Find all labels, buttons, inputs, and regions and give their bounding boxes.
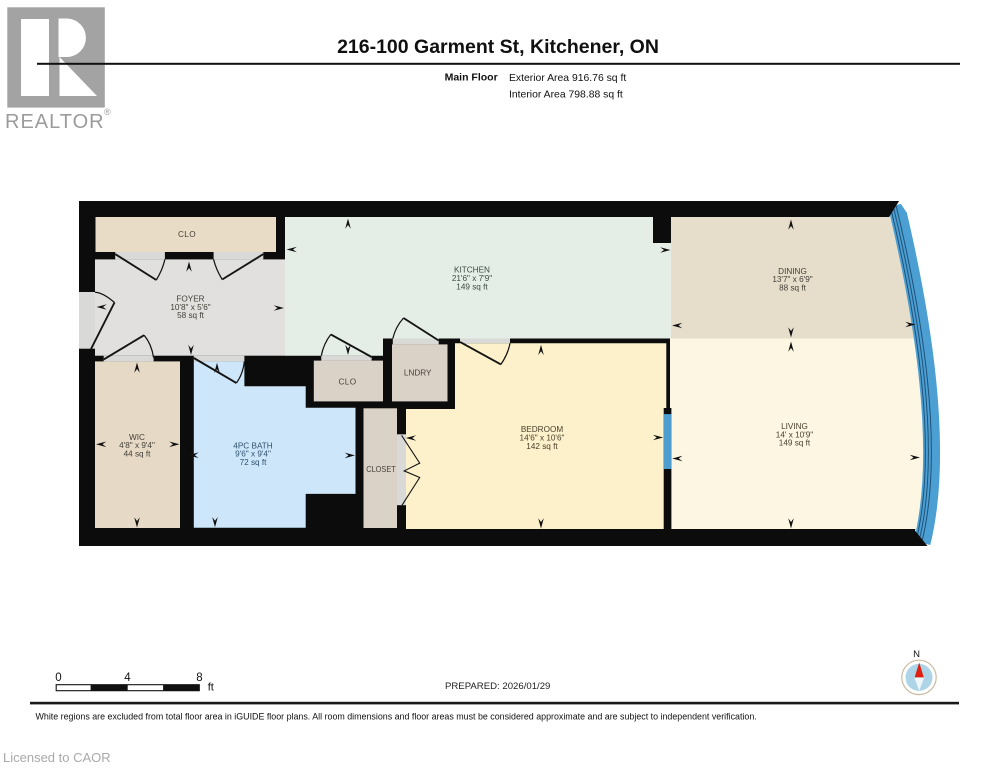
svg-text:88 sq ft: 88 sq ft xyxy=(779,283,807,292)
svg-text:PREPARED: 2026/01/29: PREPARED: 2026/01/29 xyxy=(445,681,550,692)
svg-text:58 sq ft: 58 sq ft xyxy=(177,311,205,320)
svg-text:149 sq ft: 149 sq ft xyxy=(456,282,488,291)
svg-text:CLO: CLO xyxy=(178,230,196,239)
svg-text:Main Floor: Main Floor xyxy=(445,71,498,83)
svg-text:44 sq ft: 44 sq ft xyxy=(124,449,152,458)
svg-text:142 sq ft: 142 sq ft xyxy=(526,442,558,451)
svg-text:Exterior Area 916.76 sq ft: Exterior Area 916.76 sq ft xyxy=(509,73,626,84)
svg-text:REALTOR: REALTOR xyxy=(5,111,105,133)
svg-text:72 sq ft: 72 sq ft xyxy=(240,458,268,467)
svg-text:ft: ft xyxy=(208,682,214,694)
svg-text:Interior Area 798.88 sq ft: Interior Area 798.88 sq ft xyxy=(509,89,623,100)
svg-text:8: 8 xyxy=(196,672,202,684)
svg-text:Licensed to CAOR: Licensed to CAOR xyxy=(3,750,111,765)
svg-text:LNDRY: LNDRY xyxy=(404,368,432,377)
svg-text:White regions are excluded fro: White regions are excluded from total fl… xyxy=(36,712,757,722)
svg-text:CLO: CLO xyxy=(338,377,356,386)
svg-text:149 sq ft: 149 sq ft xyxy=(779,439,811,448)
svg-text:CLOSET: CLOSET xyxy=(366,465,396,474)
svg-text:®: ® xyxy=(104,107,111,117)
svg-text:4: 4 xyxy=(124,672,131,684)
svg-text:N: N xyxy=(913,649,920,660)
svg-text:0: 0 xyxy=(55,672,61,684)
svg-text:216-100 Garment St, Kitchener,: 216-100 Garment St, Kitchener, ON xyxy=(337,36,659,58)
